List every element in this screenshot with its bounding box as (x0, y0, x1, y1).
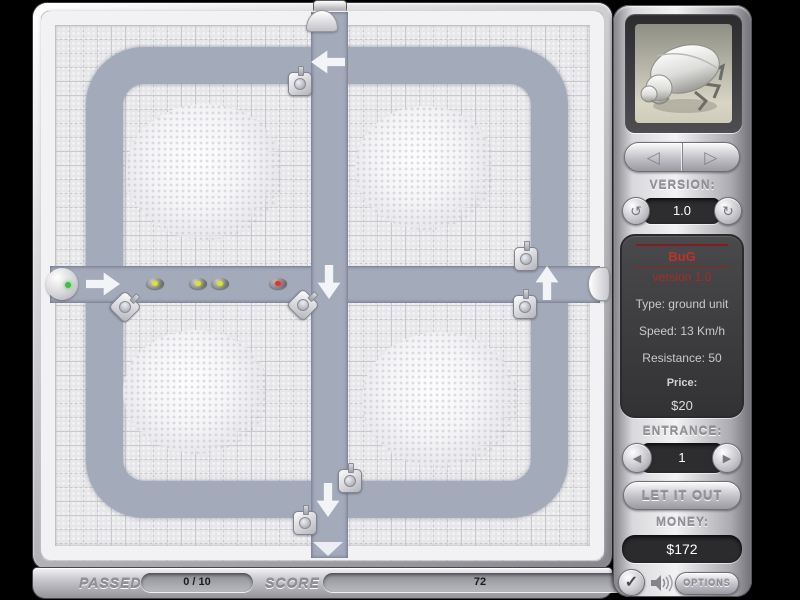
info-panel-divider (634, 267, 730, 268)
version-down-button[interactable]: ↺ (622, 197, 650, 225)
version-label: VERSION: (613, 178, 752, 192)
unit-type: Type: ground unit (636, 297, 729, 311)
price-value: $20 (671, 398, 693, 413)
money-label: MONEY: (613, 515, 752, 529)
score-label: SCORE (265, 575, 320, 591)
unit-resistance: Resistance: 50 (642, 351, 721, 365)
unit-version: version 1.0 (653, 270, 712, 284)
status-bar: PASSED 0 / 10 SCORE 72 (33, 568, 612, 598)
next-unit-button[interactable]: ▷ (683, 143, 740, 171)
unit-info-panel: BuG version 1.0 Type: ground unit Speed:… (620, 234, 744, 418)
entrance-spinner: 1 ◀ ▶ (622, 442, 742, 474)
price-label: Price: (667, 377, 698, 389)
prev-unit-button[interactable]: ◁ (625, 143, 683, 171)
options-button[interactable]: OPTIONS (675, 572, 739, 595)
beetle-image (635, 24, 732, 123)
confirm-toggle-button[interactable]: ✓ (618, 569, 645, 596)
info-panel-top-line (636, 244, 728, 246)
sidebar: ◁ ▷ VERSION: 1.0 ↺ ↻ BuG version 1.0 Typ… (613, 5, 752, 597)
entrance-label: ENTRANCE: (613, 424, 752, 438)
version-up-button[interactable]: ↻ (714, 197, 742, 225)
passed-counter: 0 / 10 (141, 573, 253, 592)
sound-icon[interactable] (649, 573, 673, 593)
beetle-icon (635, 24, 732, 123)
unit-speed: Speed: 13 Km/h (639, 324, 725, 338)
entrance-up-button[interactable]: ▶ (712, 443, 742, 473)
money-value: $172 (622, 535, 742, 563)
version-value: 1.0 (644, 198, 720, 224)
unit-preview-frame (625, 14, 742, 133)
unit-selector: ◁ ▷ (624, 142, 740, 172)
unit-name: BuG (668, 249, 695, 264)
version-spinner: 1.0 ↺ ↻ (622, 196, 742, 226)
passed-label: PASSED (79, 575, 142, 591)
entrance-down-button[interactable]: ◀ (622, 443, 652, 473)
let-it-out-button[interactable]: LET IT OUT (623, 481, 741, 510)
path-vertical (311, 12, 348, 558)
score-counter: 72 (323, 573, 637, 592)
game-screen: PASSED 0 / 10 SCORE 72 (0, 0, 800, 600)
